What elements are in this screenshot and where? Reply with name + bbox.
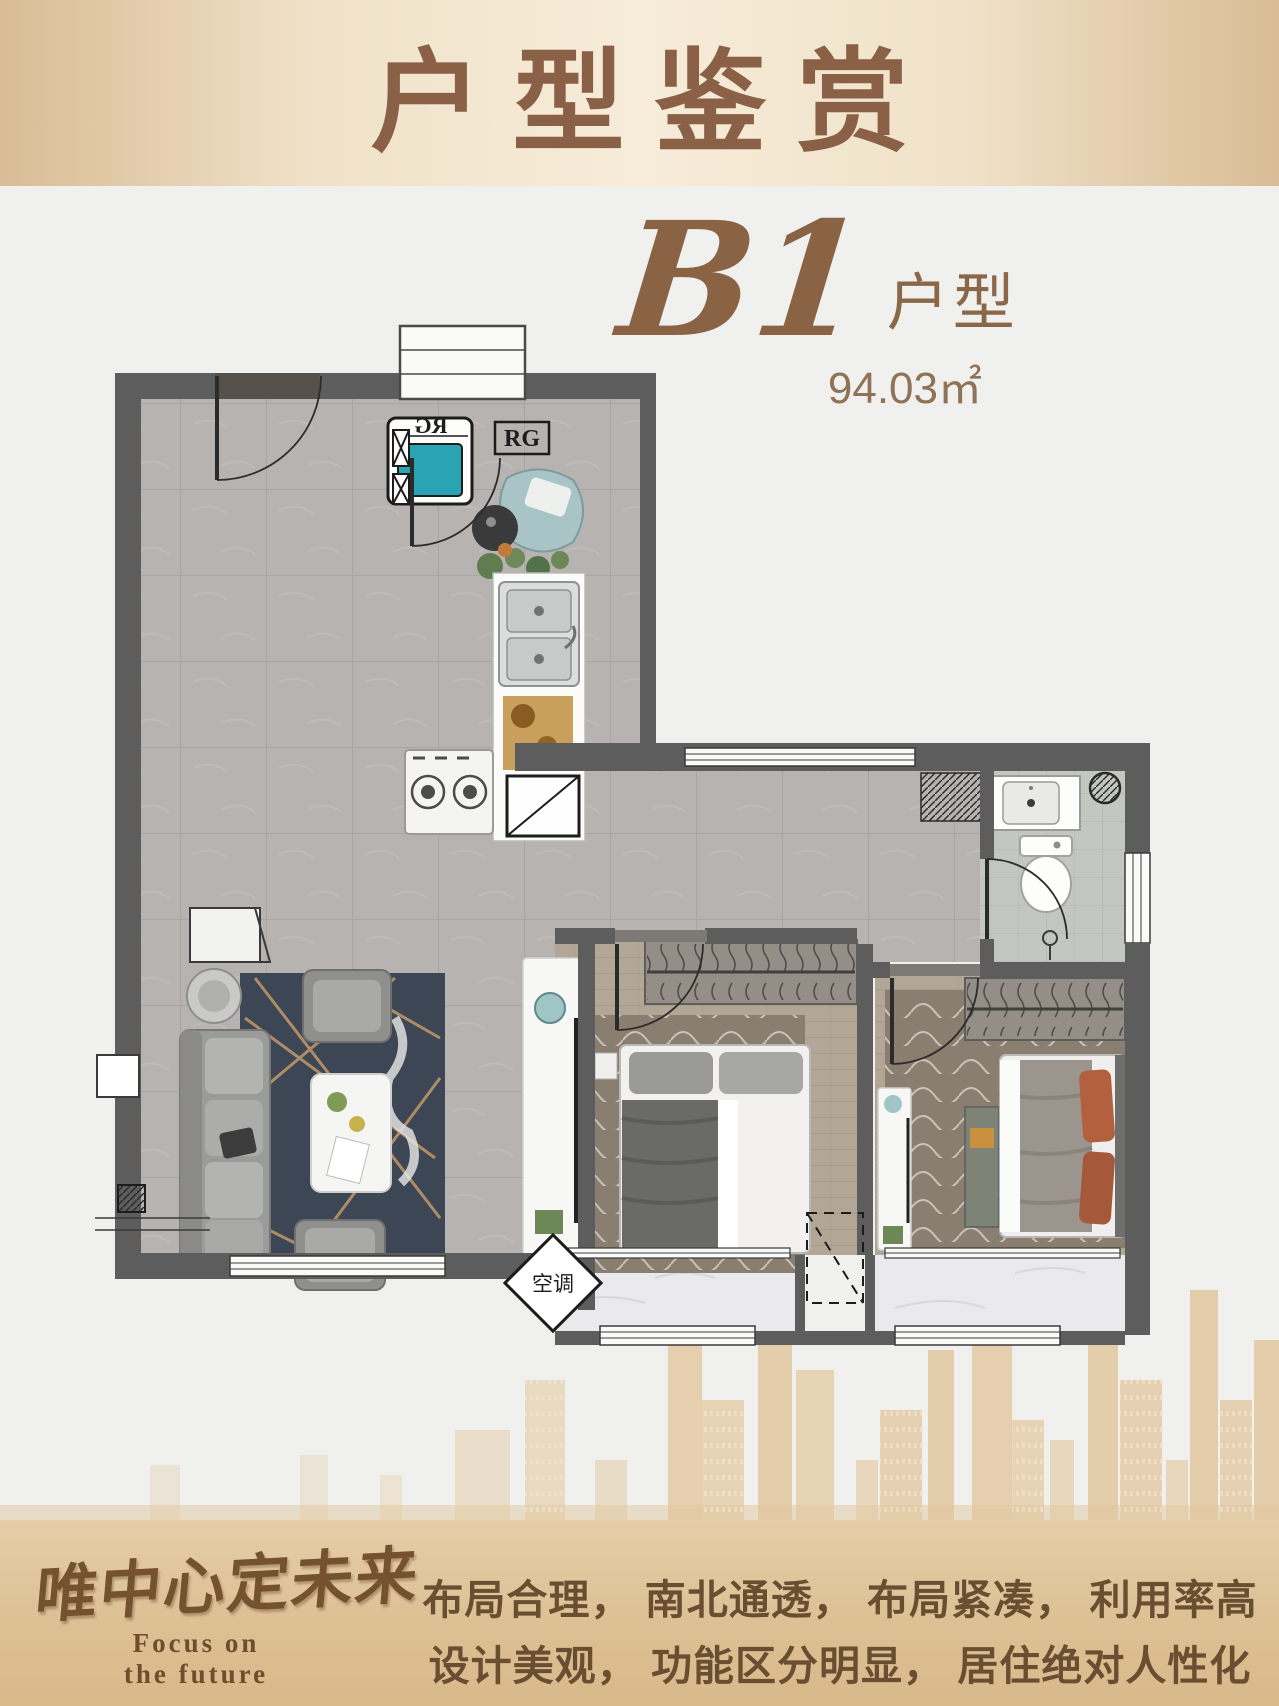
wardrobe-1 (645, 940, 857, 1004)
threshold-1 (615, 930, 707, 942)
nightstand-1 (595, 1053, 617, 1079)
pipe-shaft (1090, 773, 1120, 803)
selling-points-line1: 布局合理， 南北通透， 布局紧凑， 利用率高 (420, 1568, 1260, 1634)
top-banner: 户型鉴赏 (0, 0, 1279, 186)
floor-plan: RG RG (95, 318, 1155, 1358)
sofa (180, 1030, 270, 1276)
ac-platform-outline (97, 1055, 139, 1097)
tv-console (523, 958, 580, 1258)
armchair-top (303, 970, 391, 1042)
bedroom-2-tv-console (878, 1088, 911, 1250)
gas-stove (405, 750, 493, 834)
vanity-sink (988, 776, 1080, 830)
brand-logo-english-line1: Focus on (36, 1628, 356, 1659)
bathroom-counter-hatch (921, 773, 981, 821)
brand-logo-chinese: 唯中心定未来 (32, 1527, 359, 1634)
brand-logo-english-line2: the future (36, 1659, 356, 1690)
page-title: 户型鉴赏 (341, 12, 939, 174)
bed-1 (620, 1045, 810, 1253)
kitchen-cabinet (507, 776, 579, 836)
brand-logo: 唯中心定未来 Focus on the future (36, 1536, 356, 1690)
wardrobe-2 (965, 978, 1125, 1040)
svg-text:空调: 空调 (532, 1272, 574, 1296)
entry-round-table (472, 505, 518, 551)
selling-points: 布局合理， 南北通透， 布局紧凑， 利用率高 设计美观， 功能区分明显， 居住绝… (420, 1568, 1260, 1699)
balcony-2-floor (875, 1255, 1125, 1335)
partition-window-symbols (393, 430, 409, 504)
svg-text:RG: RG (415, 413, 448, 438)
dresser-2 (965, 1107, 999, 1227)
threshold-2 (890, 964, 980, 976)
svg-text:RG: RG (504, 426, 540, 452)
toilet (1020, 836, 1072, 912)
selling-points-line2: 设计美观， 功能区分明显， 居住绝对人性化 (420, 1634, 1260, 1700)
bed-2 (1000, 1055, 1125, 1237)
side-table (187, 969, 241, 1023)
footer-banner: 唯中心定未来 Focus on the future 布局合理， 南北通透， 布… (0, 1520, 1279, 1706)
column-hatch (118, 1185, 145, 1212)
coffee-table (311, 1074, 391, 1192)
kitchen-sink (499, 582, 579, 686)
console-sketch (190, 908, 270, 962)
